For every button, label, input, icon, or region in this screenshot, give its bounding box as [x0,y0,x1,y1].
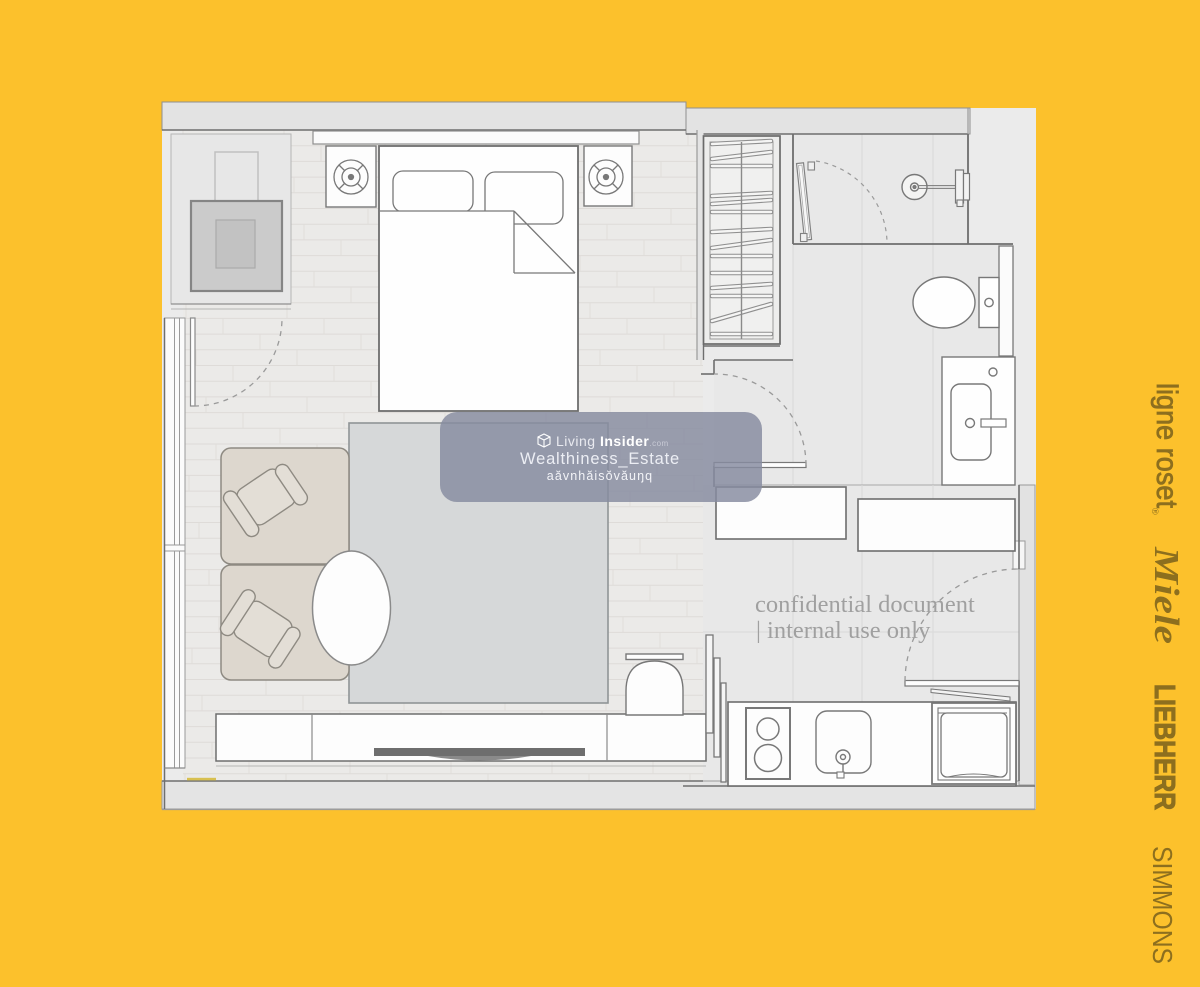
svg-text:Wealthiness_Estate: Wealthiness_Estate [520,450,680,468]
svg-text:aăvnhăisŏvăuŋq: aăvnhăisŏvăuŋq [547,469,653,483]
svg-text:SIMMONS: SIMMONS [1147,846,1178,964]
svg-text:ligne roset: ligne roset [1150,383,1183,509]
svg-text:Miele: Miele [1147,546,1186,644]
svg-text:LIEBHERR: LIEBHERR [1148,684,1180,810]
svg-text:| internal use only: | internal use only [756,617,931,644]
svg-text:confidential document: confidential document [755,591,975,618]
svg-text:®: ® [1150,508,1160,515]
